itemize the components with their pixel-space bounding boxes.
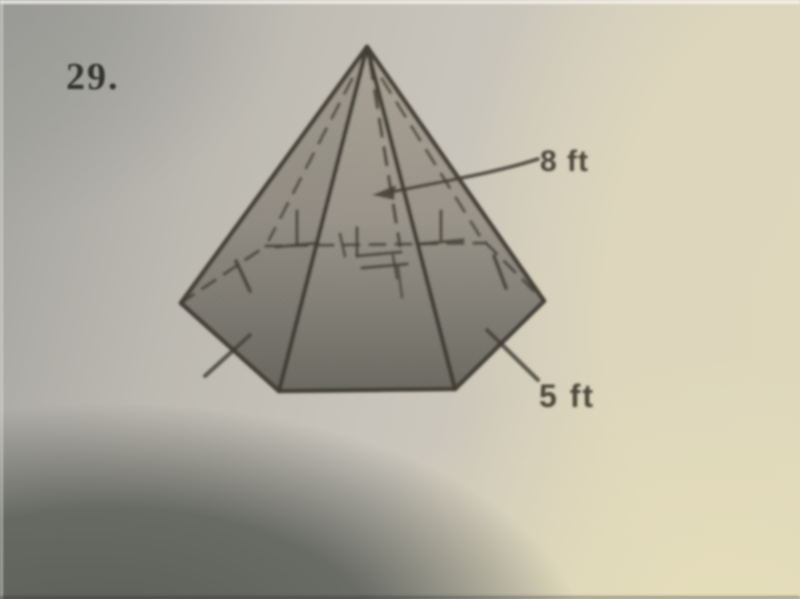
photographed-page: 29. xyxy=(0,0,800,599)
hexagonal-pyramid-figure: 8 ft 5 ft xyxy=(0,0,800,599)
base-edge-label: 5 ft xyxy=(539,378,595,414)
tick-right-front-edge xyxy=(487,330,538,380)
height-label: 8 ft xyxy=(540,145,589,178)
